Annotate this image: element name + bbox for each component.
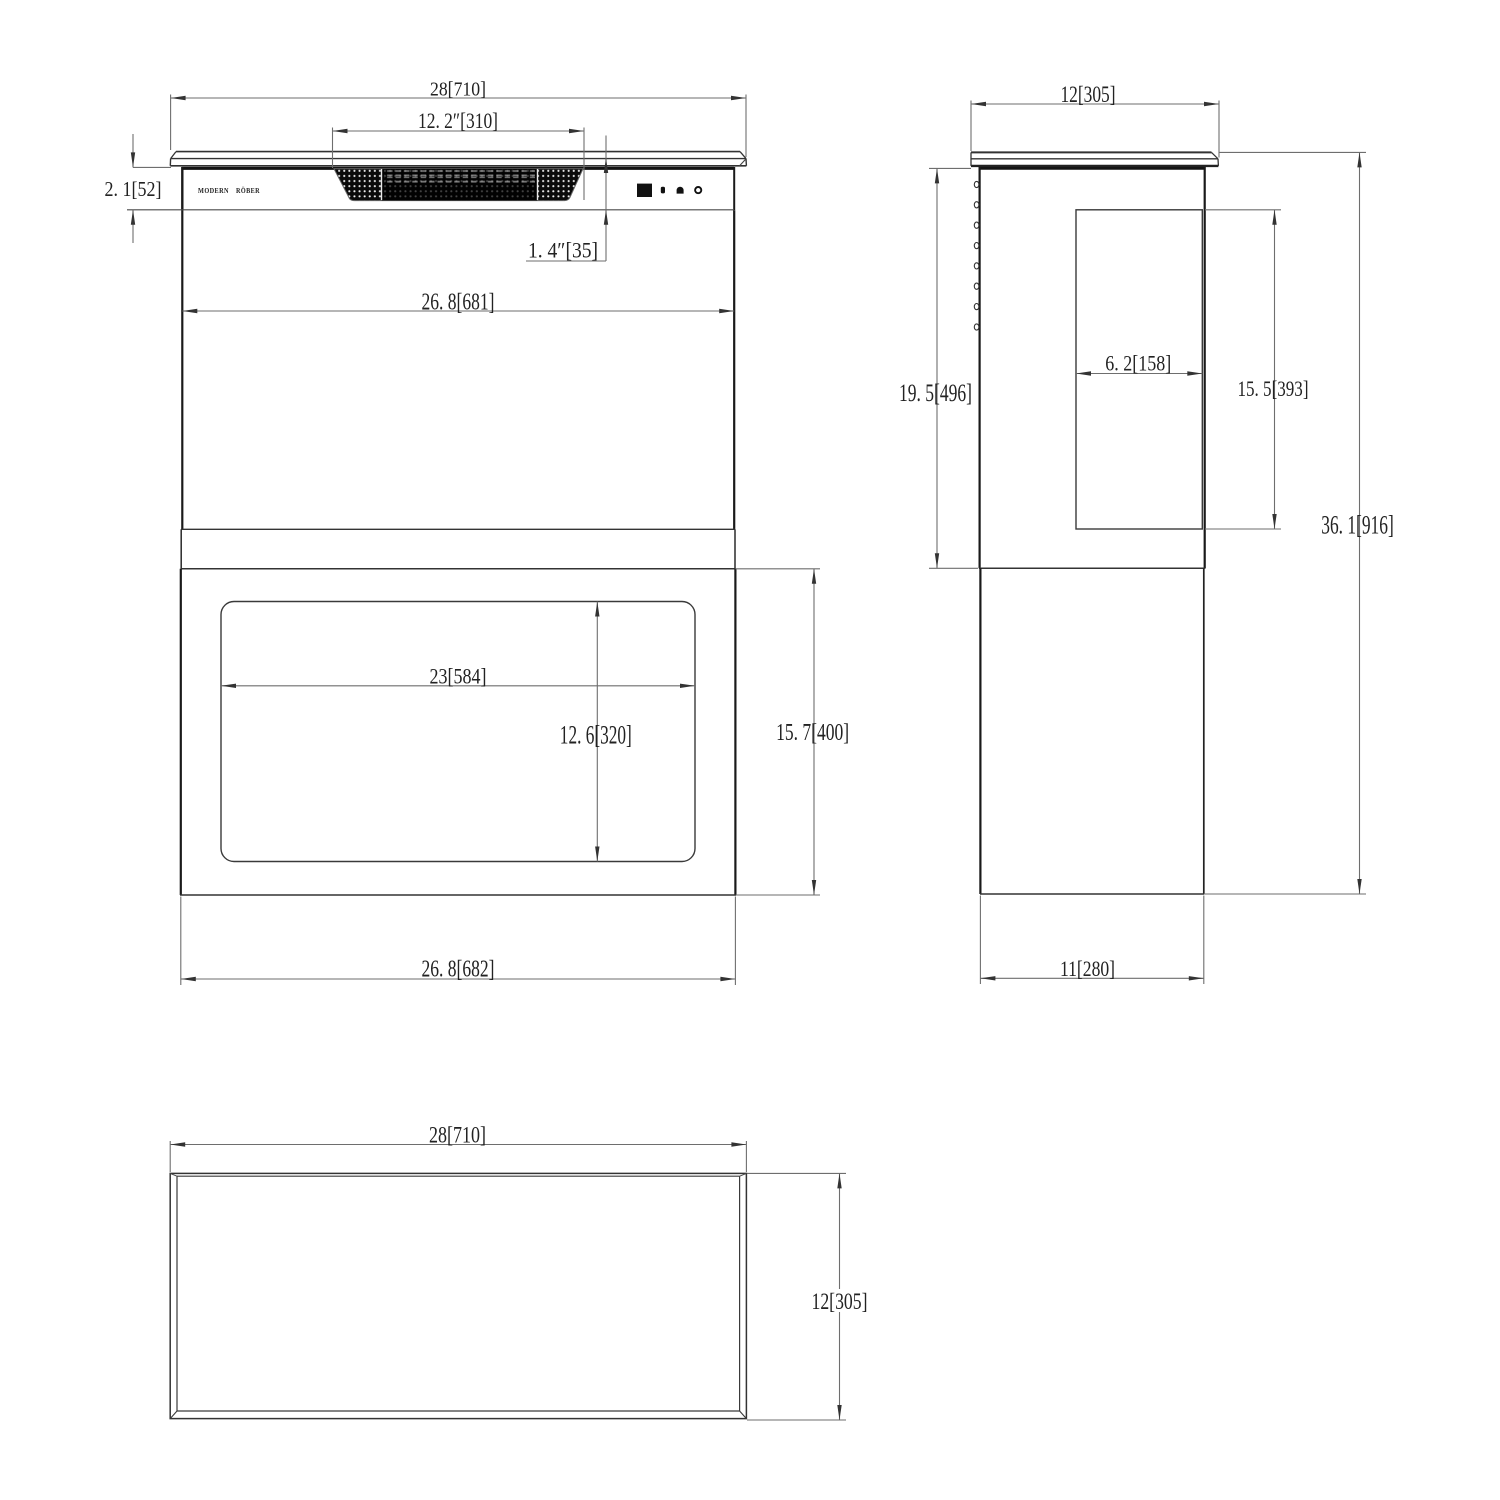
svg-text:11[280]: 11[280] [1060, 956, 1115, 981]
svg-text:2. 1[52]: 2. 1[52] [105, 177, 162, 201]
svg-text:36. 1[916]: 36. 1[916] [1321, 511, 1394, 540]
svg-text:12[305]: 12[305] [1061, 82, 1116, 107]
svg-text:28[710]: 28[710] [429, 1122, 486, 1147]
svg-text:19. 5[496]: 19. 5[496] [899, 380, 972, 407]
svg-text:1. 4″[35]: 1. 4″[35] [528, 238, 598, 263]
svg-text:6. 2[158]: 6. 2[158] [1105, 350, 1171, 375]
svg-text:12. 6[320]: 12. 6[320] [560, 721, 632, 750]
svg-text:RÖBER: RÖBER [236, 186, 260, 195]
svg-text:12. 2″[310]: 12. 2″[310] [418, 108, 498, 133]
svg-text:12[305]: 12[305] [812, 1289, 868, 1315]
svg-text:26. 8[681]: 26. 8[681] [422, 289, 495, 316]
svg-text:MODERN: MODERN [198, 186, 229, 195]
svg-text:15. 7[400]: 15. 7[400] [776, 719, 849, 746]
svg-text:15. 5[393]: 15. 5[393] [1238, 376, 1309, 401]
svg-text:26. 8[682]: 26. 8[682] [422, 956, 495, 983]
svg-text:28[710]: 28[710] [430, 79, 486, 101]
svg-text:23[584]: 23[584] [430, 664, 487, 689]
